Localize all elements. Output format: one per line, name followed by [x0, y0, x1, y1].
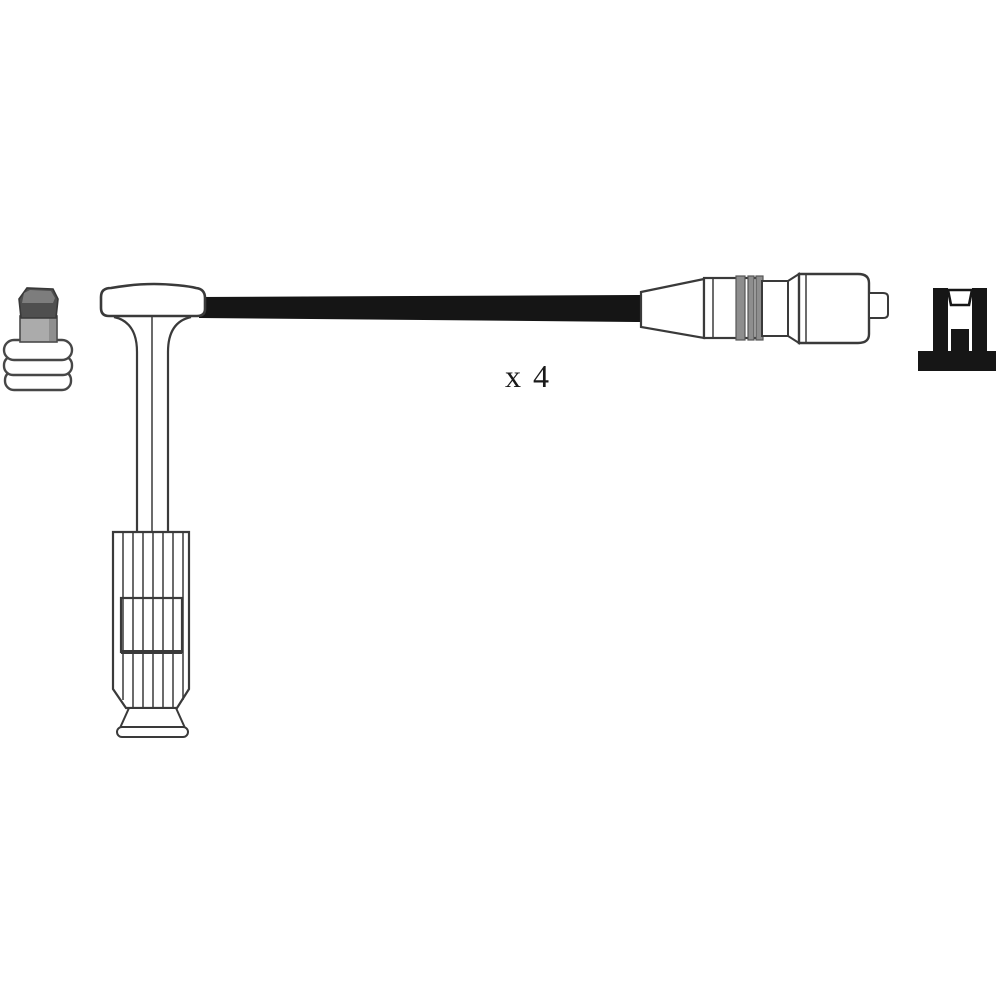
boot-stem-left	[114, 317, 137, 533]
connector-cone	[641, 279, 704, 338]
mounting-clip-icon	[918, 288, 996, 371]
ignition-cable	[199, 295, 641, 322]
product-image: x 4	[0, 0, 1000, 1000]
boot-body	[113, 532, 189, 708]
clip-right-wall	[972, 288, 987, 353]
clip-center-post	[951, 329, 969, 353]
terminal-ring-1	[4, 340, 72, 360]
connector-flare	[788, 274, 799, 343]
boot-head	[101, 284, 205, 316]
spark-plug-terminal-nut-icon	[4, 288, 72, 390]
boot-stem-right	[168, 317, 191, 533]
clip-left-wall	[933, 288, 948, 353]
connector-grip-stripes	[736, 276, 763, 340]
connector-middle	[762, 281, 788, 336]
ignition-cable-kit-drawing	[0, 0, 1000, 1000]
connector-nub	[869, 293, 888, 318]
spark-plug-boot-icon	[101, 284, 205, 737]
terminal-neck-shade	[49, 317, 56, 341]
coil-end-connector-icon	[641, 274, 888, 343]
boot-bell	[120, 708, 185, 728]
quantity-label: x 4	[505, 358, 551, 395]
terminal-cap-highlight	[22, 290, 55, 303]
connector-end-cap	[799, 274, 869, 343]
clip-base	[918, 351, 996, 371]
boot-lip	[117, 727, 188, 737]
clip-funnel	[948, 290, 972, 305]
